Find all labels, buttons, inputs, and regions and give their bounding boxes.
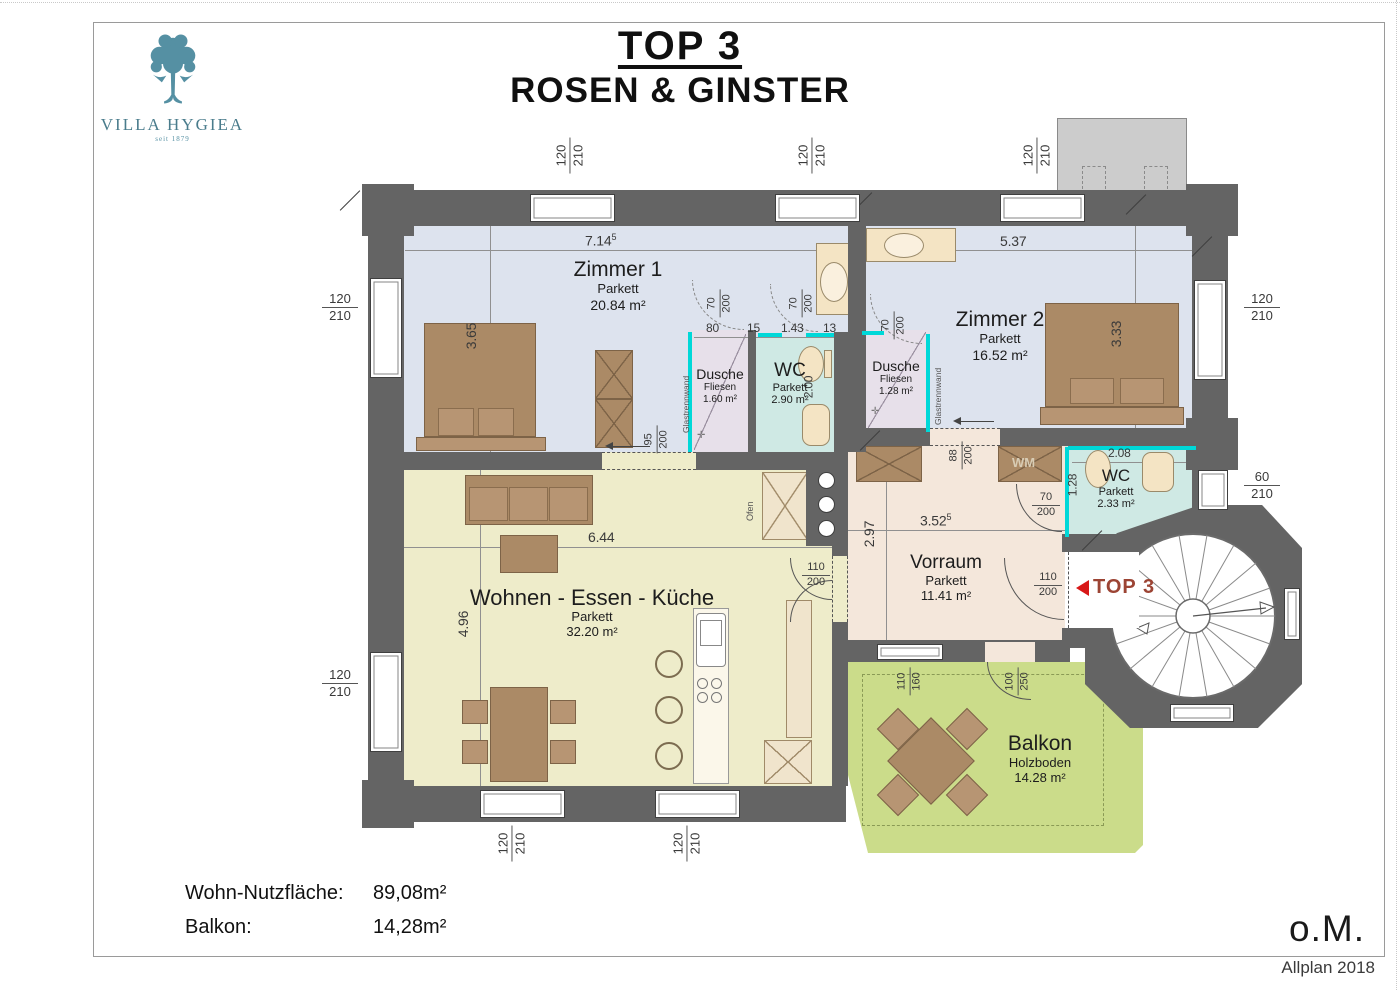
logo: VILLA HYGIEA seit 1879 bbox=[100, 30, 245, 143]
dim-line bbox=[694, 337, 834, 338]
door-arrow-head bbox=[953, 417, 961, 425]
wall-corridor-bottom bbox=[1062, 628, 1086, 648]
wall-mid-vertical bbox=[848, 226, 866, 452]
pillow bbox=[438, 408, 474, 436]
dim-seg-13: 13 bbox=[823, 321, 836, 335]
door-arrow bbox=[960, 421, 994, 422]
window-top-2 bbox=[775, 194, 860, 222]
pilaster bbox=[1186, 184, 1238, 236]
room-label-wc1: WC Parkett 2.90 m² bbox=[750, 360, 830, 407]
dim-door-70-200: 70200 bbox=[789, 289, 816, 317]
shower-head-icon: ✛ bbox=[871, 406, 879, 417]
door-opening-zimmer1 bbox=[602, 452, 696, 470]
window-tower-bottom bbox=[1170, 704, 1234, 722]
chair bbox=[550, 740, 576, 764]
bed-footboard bbox=[416, 437, 546, 451]
entry-arrow-icon bbox=[1076, 580, 1089, 596]
dim-333: 3.33 bbox=[1108, 321, 1124, 347]
floor-plan-sheet: VILLA HYGIEA seit 1879 TOP 3 ROSEN & GIN… bbox=[0, 0, 1400, 990]
dim-3525: 3.525 bbox=[920, 512, 951, 529]
wall-bottom bbox=[368, 786, 846, 822]
bed-footboard bbox=[1040, 407, 1184, 425]
dim-window-120-210: 120210 bbox=[496, 826, 527, 862]
room-label-dusche2: Dusche Fliesen 1.28 m² bbox=[858, 358, 934, 397]
room-label-zimmer2: Zimmer 2 Parkett 16.52 m² bbox=[900, 308, 1100, 363]
unit-marker-label: TOP 3 bbox=[1093, 576, 1155, 599]
dining-table bbox=[490, 687, 548, 782]
pilaster bbox=[362, 780, 414, 828]
window-right-wc2 bbox=[1198, 470, 1228, 510]
chair bbox=[462, 700, 488, 724]
pillow bbox=[478, 408, 514, 436]
dim-door-70-200: 70200 bbox=[1032, 492, 1060, 519]
room-label-wohnen: Wohnen - Essen - Küche Parkett 32.20 m² bbox=[442, 585, 742, 640]
room-label-wc2: WC Parkett 2.33 m² bbox=[1076, 466, 1156, 511]
window-top-3 bbox=[1000, 194, 1085, 222]
dim-seg-143: 1.43 bbox=[781, 321, 804, 335]
dim-window-120-210: 120210 bbox=[554, 138, 585, 174]
window-top-1 bbox=[530, 194, 615, 222]
dim-window-60-210: 60210 bbox=[1244, 470, 1280, 501]
oven-cabinet bbox=[762, 472, 808, 540]
glass-partition bbox=[1068, 446, 1196, 450]
dim-644: 6.44 bbox=[588, 529, 614, 545]
chimney-flue bbox=[818, 520, 835, 537]
wall-zimmer2-vorraum bbox=[848, 428, 1196, 446]
dim-door-110-200: 110200 bbox=[802, 562, 830, 589]
dim-window-120-210: 120210 bbox=[796, 138, 827, 174]
dim-window-120-210: 120210 bbox=[1021, 138, 1052, 174]
stove-burner bbox=[697, 678, 708, 689]
dim-365: 3.65 bbox=[463, 323, 479, 349]
room-label-zimmer1: Zimmer 1 Parkett 20.84 m² bbox=[518, 258, 718, 313]
area-total-value: 89,08m² bbox=[373, 882, 446, 905]
page-title: TOP 3 bbox=[430, 24, 930, 69]
stove-burner bbox=[711, 692, 722, 703]
pillow bbox=[1070, 378, 1114, 404]
bar-stool bbox=[655, 742, 683, 770]
logo-subtitle: seit 1879 bbox=[100, 135, 245, 143]
dim-window-120-210: 120210 bbox=[1244, 292, 1280, 323]
window-vorraum-balkon bbox=[877, 644, 943, 660]
wardrobe bbox=[595, 350, 633, 399]
bar-stool bbox=[655, 650, 683, 678]
washbasin-wc1 bbox=[802, 404, 830, 446]
dim-line bbox=[848, 530, 1065, 531]
area-total-label: Wohn-Nutzfläche: bbox=[185, 882, 344, 905]
scan-artifact-top bbox=[0, 2, 1400, 3]
sofa-cushion bbox=[509, 487, 548, 521]
dim-seg-80: 80 bbox=[706, 321, 719, 335]
room-label-dusche1: Dusche Fliesen 1.60 m² bbox=[684, 366, 756, 405]
washing-machine-label: WM bbox=[1012, 455, 1035, 470]
window-bottom-1 bbox=[480, 790, 565, 818]
stove-burner bbox=[697, 692, 708, 703]
stove-burner bbox=[711, 678, 722, 689]
window-left-2 bbox=[370, 652, 402, 752]
dim-208: 2.08 bbox=[1108, 446, 1131, 460]
door-arrow-head bbox=[605, 442, 613, 450]
dim-seg-15: 15 bbox=[747, 321, 760, 335]
dim-window-120-210: 120210 bbox=[322, 668, 358, 699]
room-label-balkon: Balkon Holzboden 14.28 m² bbox=[965, 732, 1115, 786]
scan-artifact-right bbox=[1396, 0, 1397, 990]
dim-537: 5.37 bbox=[1000, 233, 1026, 249]
dim-door-95-200: 95200 bbox=[644, 425, 671, 453]
door-opening-balkon bbox=[985, 642, 1035, 662]
door-opening-wohnen-vorraum bbox=[832, 556, 848, 622]
window-left-1 bbox=[370, 278, 402, 378]
dim-line bbox=[404, 547, 832, 548]
window-tower-right bbox=[1284, 588, 1300, 640]
oven-label: Ofen bbox=[745, 489, 755, 521]
software-credit: Allplan 2018 bbox=[1230, 958, 1375, 978]
kitchen-cabinet-x bbox=[764, 740, 812, 784]
chair bbox=[550, 700, 576, 724]
pilaster bbox=[1186, 418, 1238, 470]
page-subtitle: ROSEN & GINSTER bbox=[430, 71, 930, 111]
villa-hygiea-tree-icon bbox=[136, 30, 210, 108]
sofa-cushion bbox=[469, 487, 508, 521]
wardrobe bbox=[595, 399, 633, 448]
chair bbox=[462, 740, 488, 764]
bar-stool bbox=[655, 696, 683, 724]
dim-714: 7.145 bbox=[585, 232, 616, 249]
glass-partition-label: Glastrennwand bbox=[933, 355, 943, 425]
unit-entry-marker: TOP 3 bbox=[1076, 576, 1155, 599]
title-block: TOP 3 ROSEN & GINSTER bbox=[430, 24, 930, 111]
dim-window-120-210: 120210 bbox=[671, 826, 702, 862]
dim-door-100-250: 100250 bbox=[1005, 667, 1032, 695]
chimney-flue bbox=[818, 496, 835, 513]
pilaster bbox=[362, 184, 414, 236]
pillow bbox=[1120, 378, 1164, 404]
balcony-area-value: 14,28m² bbox=[373, 916, 446, 939]
wall-wc1-right bbox=[834, 332, 848, 452]
dim-door-88-200: 88200 bbox=[949, 441, 976, 469]
dim-297: 2.97 bbox=[861, 521, 877, 547]
shower-head-icon: ✛ bbox=[697, 430, 705, 441]
dim-window-110-160: 110160 bbox=[897, 667, 924, 695]
room-label-vorraum: Vorraum Parkett 11.41 m² bbox=[876, 552, 1016, 604]
dim-window-120-210: 120210 bbox=[322, 292, 358, 323]
coffee-table bbox=[500, 535, 558, 573]
balcony-area-label: Balkon: bbox=[185, 916, 252, 939]
window-bottom-2 bbox=[655, 790, 740, 818]
sofa-cushion bbox=[549, 487, 588, 521]
sink bbox=[884, 233, 924, 258]
logo-name: VILLA HYGIEA bbox=[100, 115, 245, 135]
window-right-zimmer2 bbox=[1194, 280, 1226, 380]
sink bbox=[820, 262, 848, 302]
dim-line bbox=[405, 250, 832, 251]
scale-note: o.M. bbox=[1240, 908, 1365, 950]
chimney-flue bbox=[818, 472, 835, 489]
glass-partition bbox=[758, 333, 782, 337]
dim-door-110-200: 110200 bbox=[1034, 572, 1062, 599]
